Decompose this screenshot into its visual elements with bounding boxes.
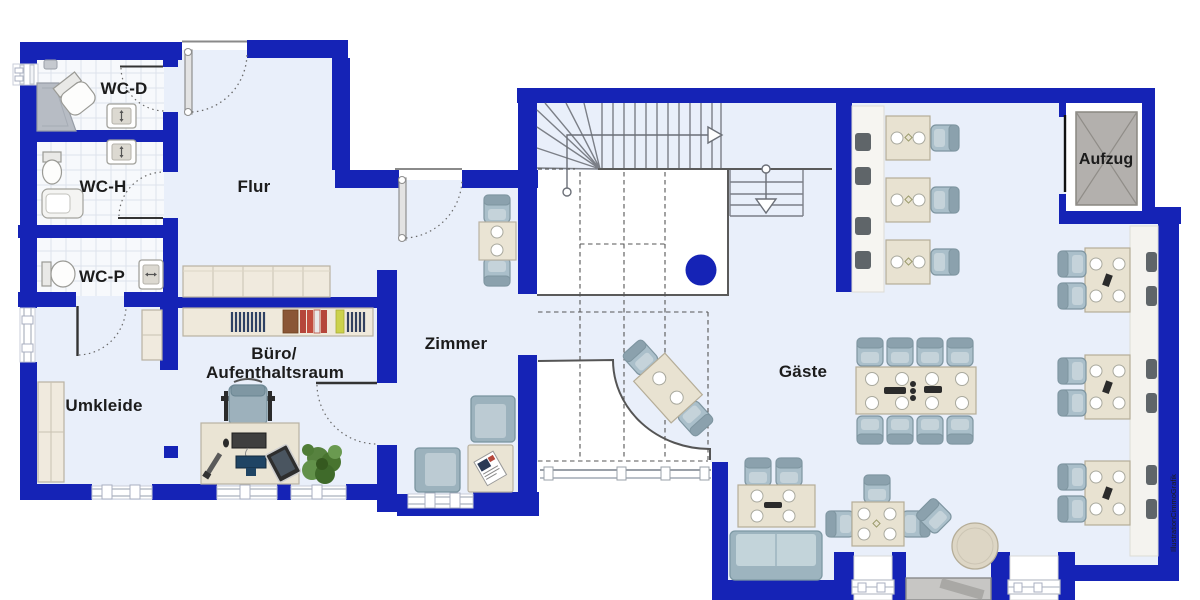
svg-text:Zimmer: Zimmer [425,334,488,353]
svg-text:IllustrationCimmoGrafik: IllustrationCimmoGrafik [1169,474,1178,552]
svg-text:WC-D: WC-D [100,79,147,98]
svg-text:Aufenthaltsraum: Aufenthaltsraum [206,363,344,382]
svg-text:WC-H: WC-H [79,177,126,196]
svg-text:Aufzug: Aufzug [1079,151,1133,168]
svg-text:Flur: Flur [238,177,271,196]
svg-text:Umkleide: Umkleide [65,396,142,415]
svg-text:WC-P: WC-P [79,267,125,286]
svg-text:Büro/: Büro/ [251,344,296,363]
svg-text:Gäste: Gäste [779,362,827,381]
